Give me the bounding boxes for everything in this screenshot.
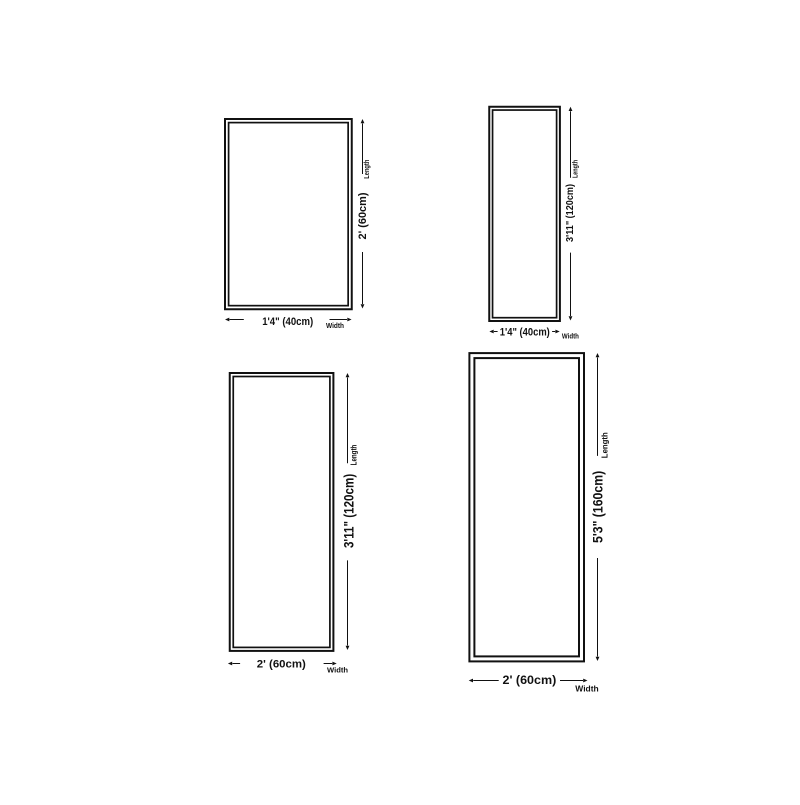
svg-text:2' (60cm): 2' (60cm) <box>503 675 557 687</box>
svg-text:Width: Width <box>562 334 579 341</box>
svg-text:Width: Width <box>327 666 348 675</box>
svg-text:2' (60cm): 2' (60cm) <box>357 192 369 239</box>
svg-text:Length: Length <box>364 160 371 179</box>
svg-text:1'4" (40cm): 1'4" (40cm) <box>262 316 313 328</box>
svg-text:Length: Length <box>349 445 358 466</box>
svg-text:5'3" (160cm): 5'3" (160cm) <box>591 471 606 543</box>
svg-text:1'4" (40cm): 1'4" (40cm) <box>500 327 550 339</box>
svg-text:3'11" (120cm): 3'11" (120cm) <box>564 184 576 242</box>
svg-text:3'11" (120cm): 3'11" (120cm) <box>341 474 356 548</box>
svg-text:Width: Width <box>326 323 344 330</box>
svg-text:Length: Length <box>573 160 580 178</box>
svg-text:Length: Length <box>601 432 610 458</box>
svg-text:Width: Width <box>575 684 599 693</box>
svg-text:2' (60cm): 2' (60cm) <box>257 658 306 670</box>
